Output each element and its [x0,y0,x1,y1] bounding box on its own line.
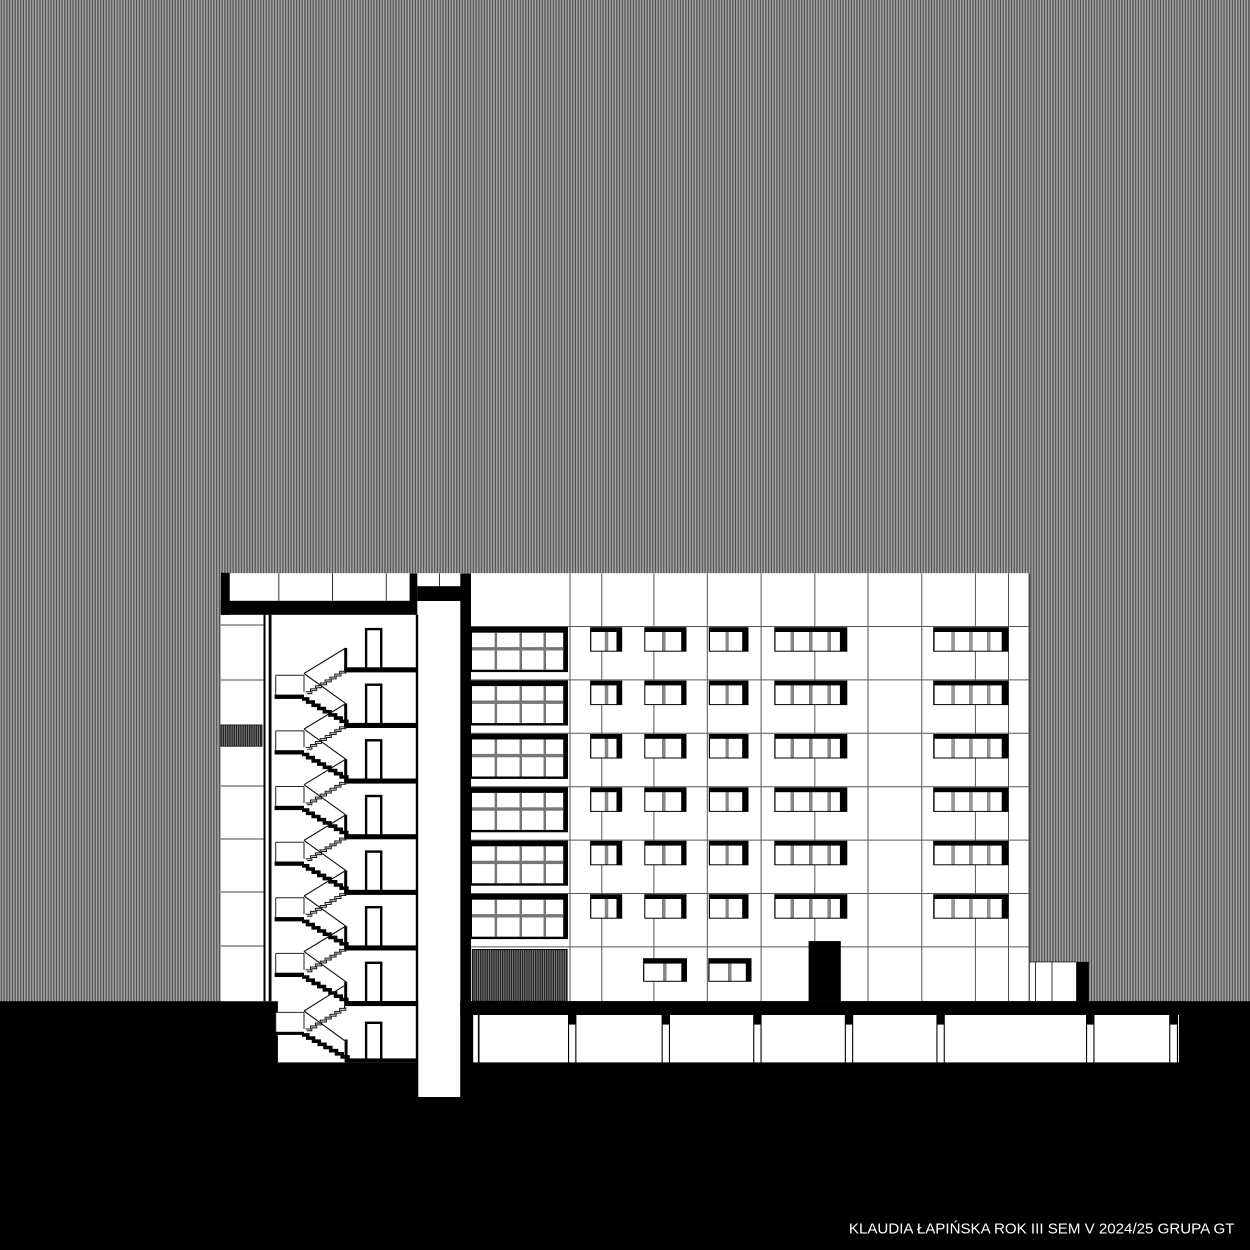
svg-text:KLAUDIA ŁAPIŃSKA ROK III SEM V: KLAUDIA ŁAPIŃSKA ROK III SEM V 2024/25 G… [849,1221,1235,1238]
